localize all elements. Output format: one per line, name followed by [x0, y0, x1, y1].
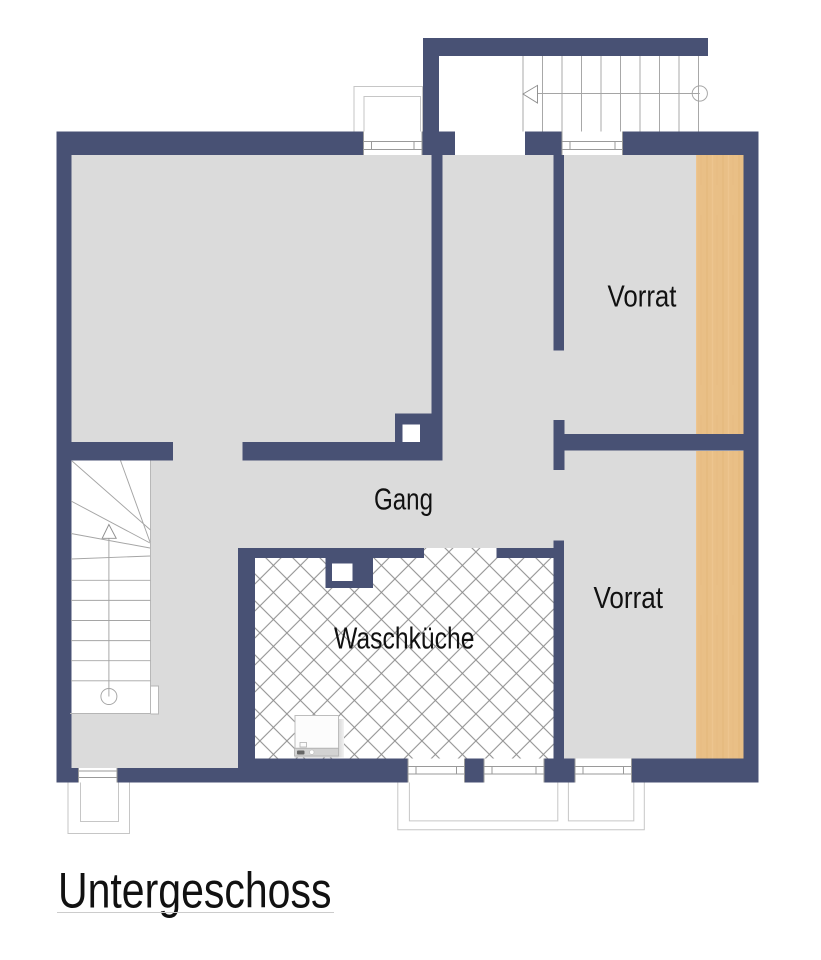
svg-text:Untergeschoss: Untergeschoss: [58, 863, 332, 919]
svg-text:Gang: Gang: [374, 482, 433, 517]
svg-text:Vorrat: Vorrat: [594, 580, 664, 615]
svg-text:Vorrat: Vorrat: [608, 279, 677, 314]
svg-text:Waschküche: Waschküche: [334, 621, 475, 656]
